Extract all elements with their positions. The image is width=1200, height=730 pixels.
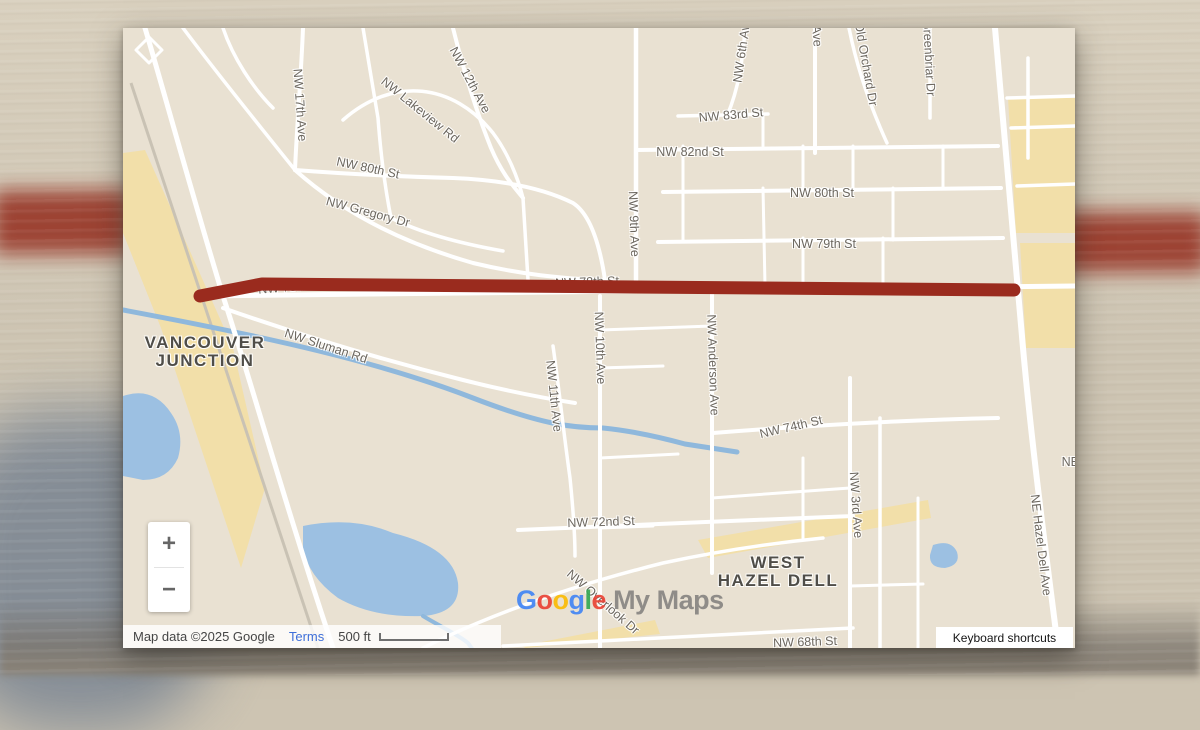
attribution-bar: Map data ©2025 Google Terms 500 ft bbox=[123, 625, 501, 648]
scale-text: 500 ft bbox=[338, 629, 371, 644]
map-canvas[interactable]: NW 17th AveNW Lakeview RdNW 12th AveNW 8… bbox=[123, 28, 1075, 648]
route-overlay bbox=[123, 28, 1075, 648]
my-maps-label: My Maps bbox=[613, 585, 724, 616]
google-logo: Google bbox=[516, 585, 606, 616]
backdrop-red-stripe-left bbox=[0, 190, 132, 254]
zoom-in-button[interactable]: + bbox=[148, 522, 190, 567]
google-logo-letter: o bbox=[537, 585, 553, 615]
google-logo-letter: G bbox=[516, 585, 537, 615]
backdrop-red-stripe-right bbox=[1058, 212, 1200, 272]
google-logo-letter: e bbox=[592, 585, 607, 615]
google-my-maps-watermark: Google My Maps bbox=[516, 585, 724, 616]
scale-control: 500 ft bbox=[338, 629, 449, 644]
map-data-credit: Map data ©2025 Google bbox=[133, 629, 275, 644]
zoom-control: + − bbox=[148, 522, 190, 612]
zoom-out-button[interactable]: − bbox=[148, 568, 190, 613]
keyboard-shortcuts-button[interactable]: Keyboard shortcuts bbox=[936, 627, 1073, 648]
google-logo-letter: o bbox=[553, 585, 569, 615]
terms-link[interactable]: Terms bbox=[289, 629, 324, 644]
scale-bar-icon bbox=[379, 633, 449, 641]
google-logo-letter: l bbox=[585, 585, 592, 615]
google-logo-letter: g bbox=[569, 585, 585, 615]
highlighted-route-nw-78th-st[interactable] bbox=[200, 284, 1014, 296]
